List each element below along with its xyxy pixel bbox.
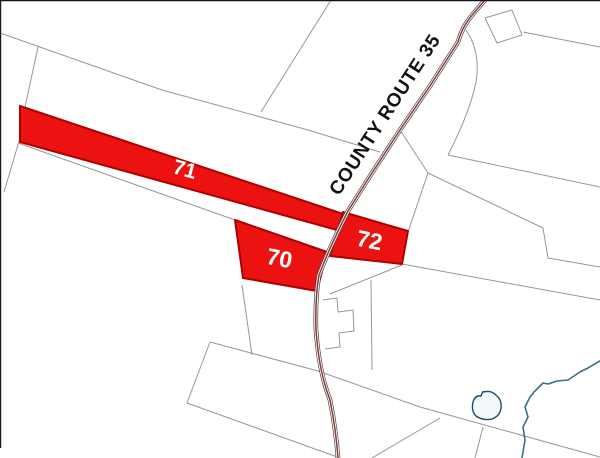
- parcel-70-label: 70: [264, 243, 294, 273]
- parcel-map-canvas: 717072COUNTY ROUTE 35: [0, 0, 600, 458]
- parcel-map: 717072COUNTY ROUTE 35: [0, 0, 600, 458]
- map-background: [0, 0, 600, 458]
- parcel-72-label: 72: [354, 225, 384, 255]
